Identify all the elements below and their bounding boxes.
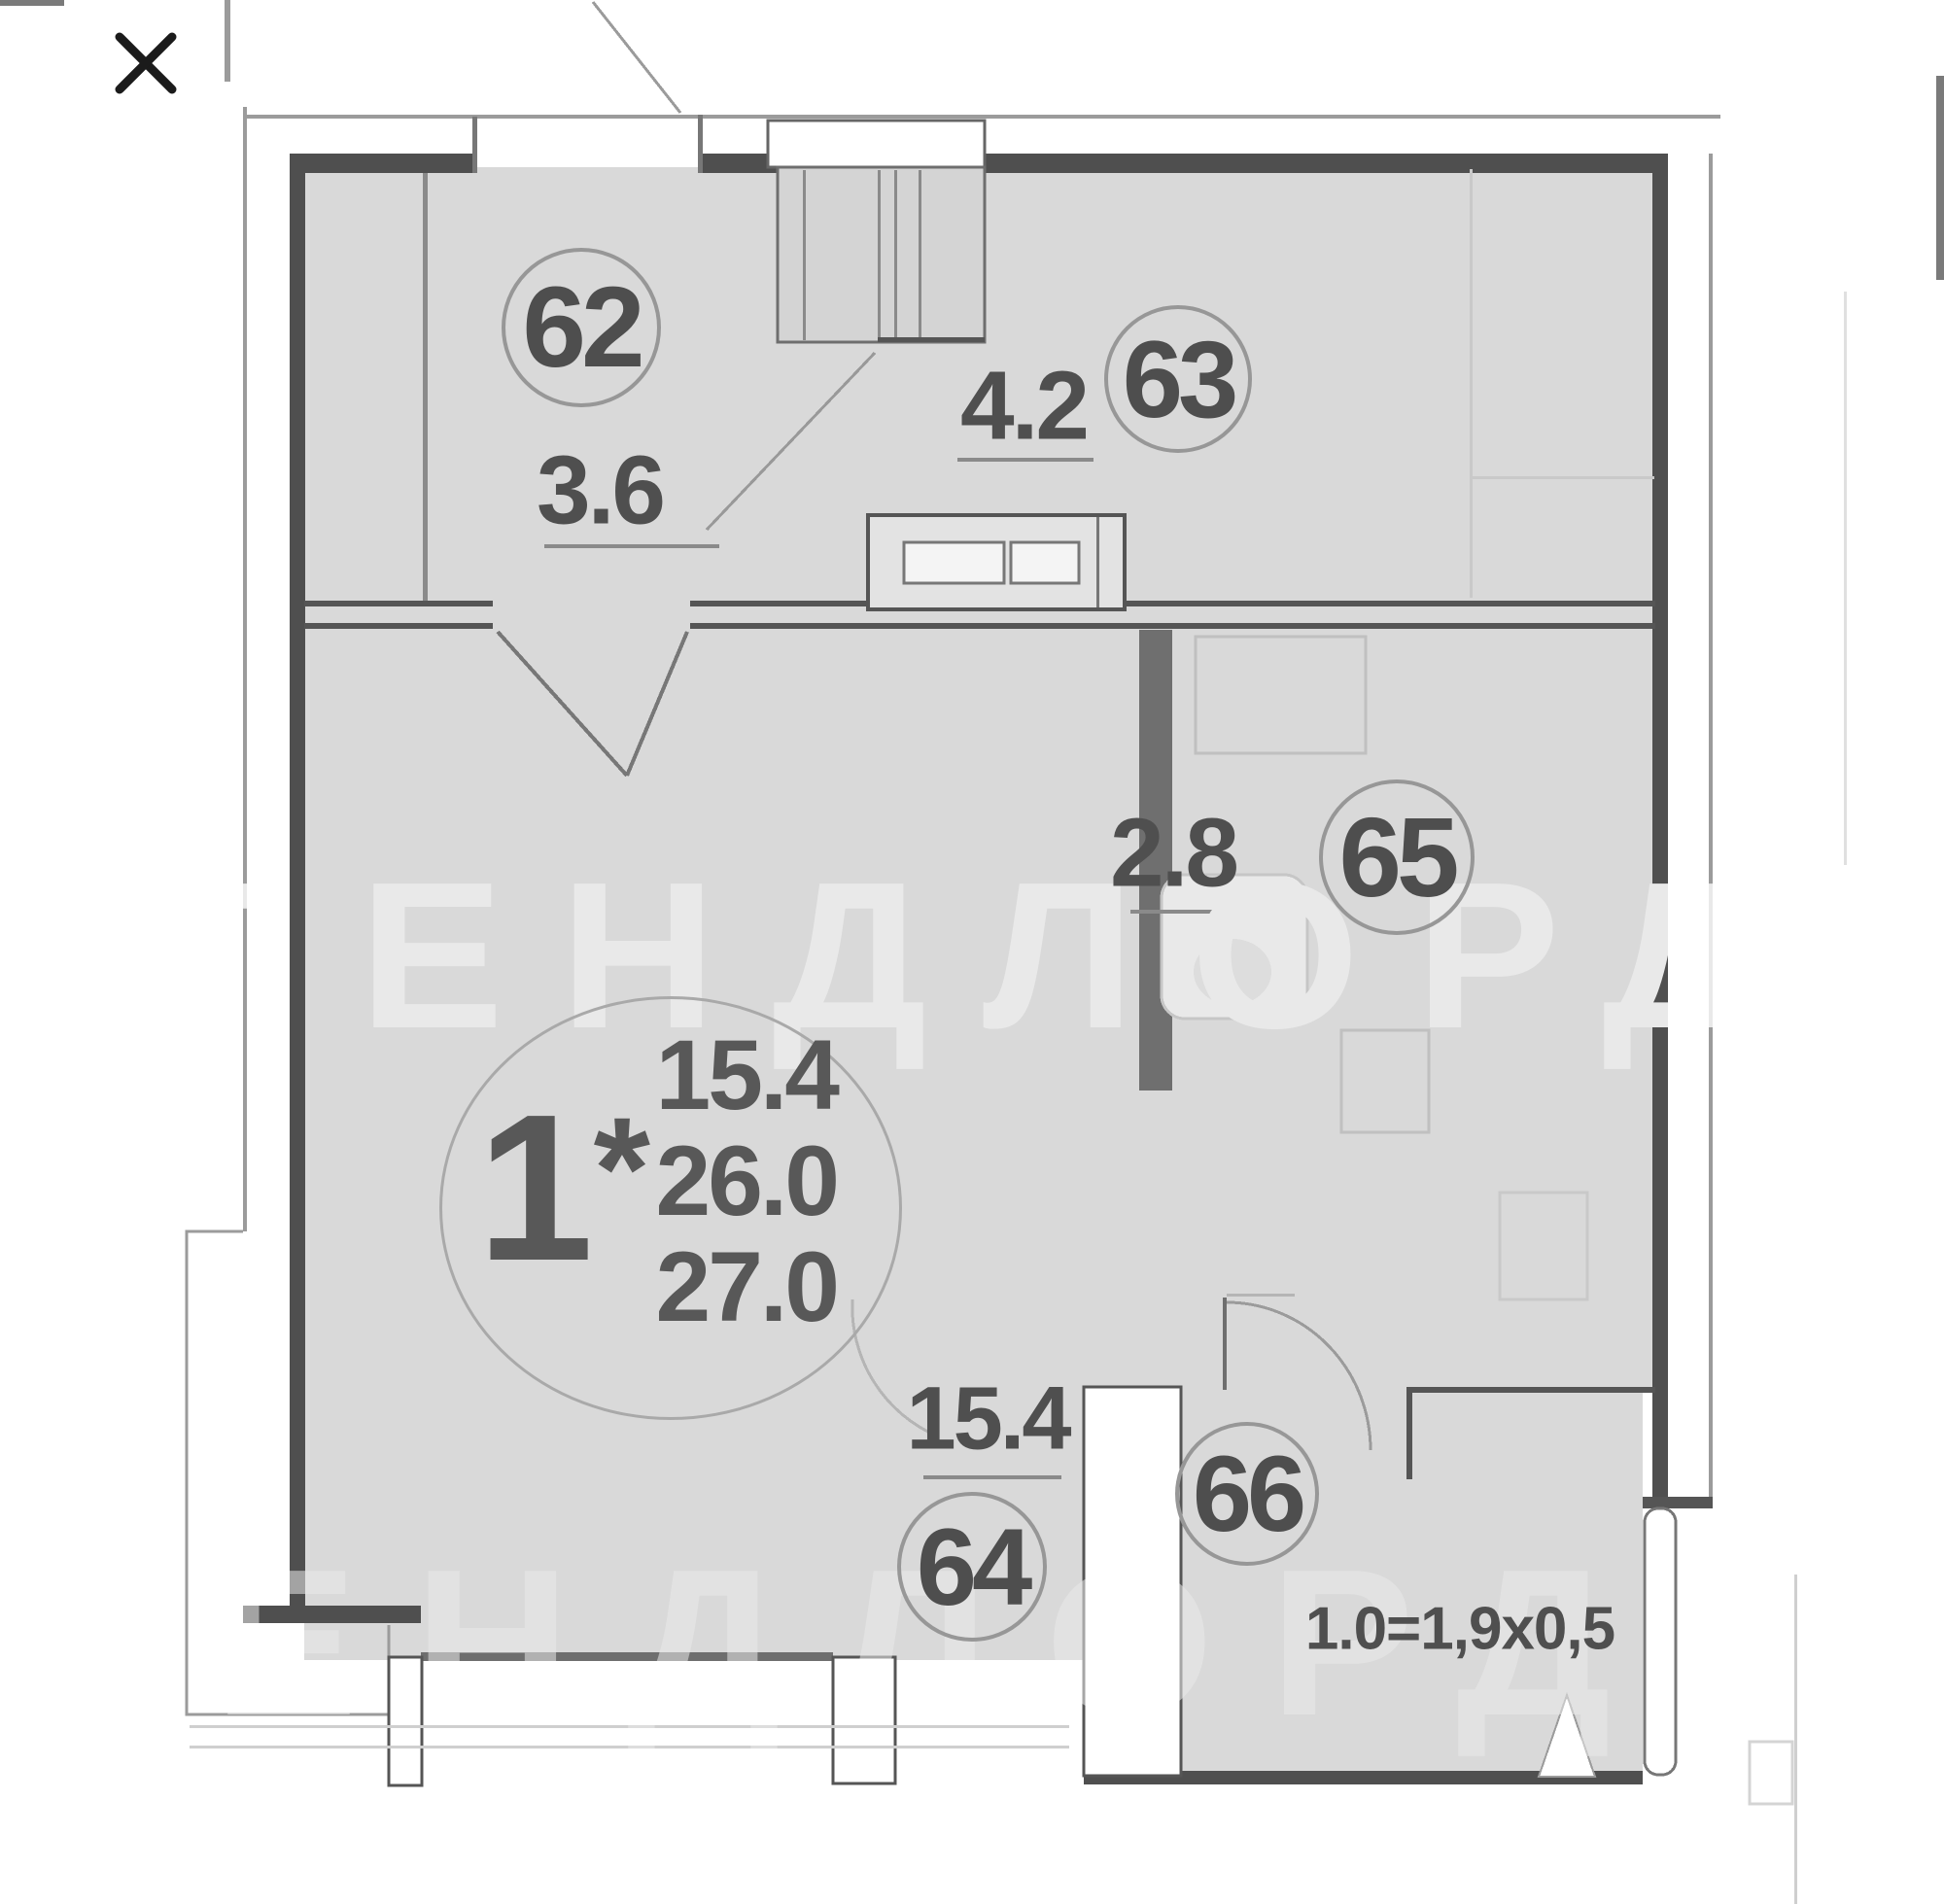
room-number: 62 [522,261,640,394]
room-number: 66 [1193,1433,1302,1556]
area-label-62: 3.6 [537,435,663,547]
vent-shaft [778,167,985,342]
room-badge-65: 65 [1319,779,1475,935]
room-badge-62: 62 [502,248,661,407]
room-badge-63: 63 [1104,305,1252,453]
room-badge-66: 66 [1175,1422,1319,1566]
room-number: 63 [1123,317,1234,442]
apartment-type-star: * [594,1095,650,1241]
apartment-areas: 15.4 26.0 27.0 [655,1022,837,1340]
apartment-type-number: 1 [477,1070,594,1304]
living-area-value: 15.4 [655,1022,837,1128]
entry-door-leaf [593,2,680,113]
balcony-dimension-note: 1.0=1,9x0,5 [1305,1595,1614,1664]
floor-plan-screen: ЛЕНДЛОРД ЛЕНДЛОРД 62 63 65 64 66 3.6 4.2… [0,0,1944,1904]
room-badge-64: 64 [897,1492,1047,1642]
area-label-63: 4.2 [960,351,1087,463]
close-icon [112,29,180,97]
apartment-info-circle: 1* 15.4 26.0 27.0 [439,996,902,1420]
area-label-65: 2.8 [1110,798,1236,910]
area-label-64: 15.4 [906,1368,1068,1471]
watermark: ЛЕНДЛОРД [151,835,1813,1076]
close-button[interactable] [112,29,180,97]
room-number: 65 [1338,792,1454,922]
apartment-type: 1* [477,1083,650,1292]
room-number: 64 [917,1505,1028,1630]
kitchen-counter [868,515,1125,609]
overall-area-value: 27.0 [655,1234,837,1340]
total-area-value: 26.0 [655,1128,837,1234]
